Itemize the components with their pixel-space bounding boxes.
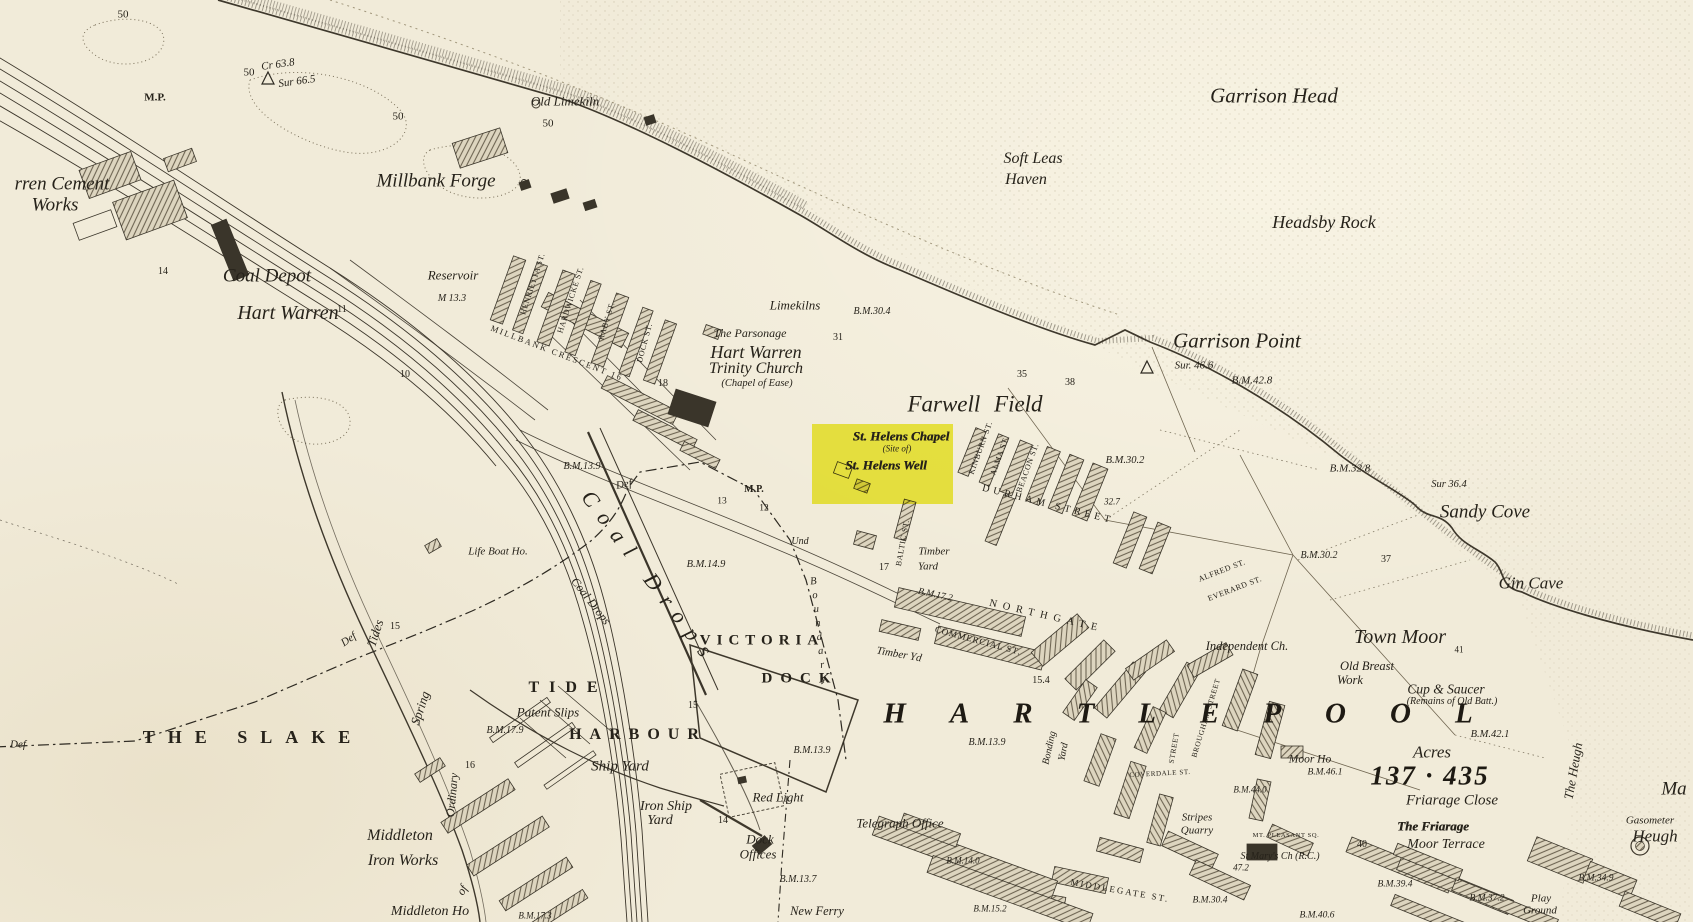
map-label: Heugh: [1632, 828, 1677, 845]
map-label: Sur 36.4: [1431, 480, 1467, 491]
map-label: DURHAM STREET: [981, 484, 1115, 527]
map-label: Town Moor: [1354, 627, 1446, 647]
map-label: Cup & Saucer: [1407, 682, 1484, 696]
map-label: HENRIETTA ST.: [519, 252, 546, 316]
map-label: Tides: [365, 618, 386, 648]
map-label: B.M.13.9: [564, 462, 601, 472]
map-label: Middleton: [367, 828, 433, 844]
map-label: Telegraph Office: [856, 817, 943, 830]
map-label: Works: [32, 196, 79, 215]
map-label: Hart Warren: [237, 303, 338, 323]
map-label: 137 · 435: [1370, 763, 1489, 790]
map-label: 16: [465, 761, 475, 771]
map-label: Old Breast: [1340, 660, 1394, 673]
map-label: Timber Yd: [876, 646, 923, 665]
map-label: B.M.30.2: [1301, 551, 1338, 561]
map-label: St. Helens Chapel: [853, 430, 949, 443]
map-label: NORTHGATE: [988, 599, 1104, 635]
map-label: B.M.42.1: [1471, 730, 1510, 741]
map-label: Sur. 46.6: [1175, 361, 1214, 372]
map-label: Friarage Close: [1406, 794, 1498, 809]
map-label: M 13.3: [438, 294, 466, 304]
map-label: Garrison Point: [1173, 331, 1301, 352]
map-label: Gin Cave: [1499, 575, 1564, 592]
map-label: Spring: [408, 690, 431, 727]
map-label: Ordinary: [444, 772, 460, 817]
map-label: B.M.17.9: [487, 726, 524, 736]
map-label: 18: [658, 379, 668, 389]
map-label: 31: [833, 333, 843, 343]
map-label: Def: [615, 478, 633, 492]
map-label: Yard: [918, 562, 938, 573]
map-label: 41: [1455, 646, 1464, 655]
map-label: The Parsonage: [714, 327, 787, 339]
map-label: 15.4: [1032, 676, 1050, 686]
map-label: Quarry: [1181, 826, 1213, 837]
map-label: Soft Leas: [1003, 151, 1062, 167]
map-label: EVERARD ST.: [1207, 575, 1263, 603]
map-label: 10: [400, 370, 410, 380]
map-label: 47.2: [1233, 864, 1249, 873]
map-label: STREET: [1168, 732, 1181, 764]
map-label: COVERDALE ST.: [1129, 769, 1191, 779]
map-label: The Heugh: [1562, 742, 1585, 801]
map-label: Ma: [1661, 780, 1686, 799]
map-label: 13: [717, 497, 727, 507]
map-label: Limekilns: [770, 299, 821, 312]
map-label: B.M.17.2: [917, 588, 953, 605]
map-label: BALTIC ST.: [895, 519, 911, 567]
map-label: ALFRED ST.: [1197, 558, 1246, 583]
map-label: Headsby Rock: [1272, 213, 1375, 231]
map-label: ALMA ST.: [989, 436, 1010, 477]
map-viewport[interactable]: 50M.P.Cr 63.8Sur 66.5505050Old LimekilnG…: [0, 0, 1693, 922]
map-label: (Site of): [883, 445, 912, 454]
map-label: Offices: [740, 848, 777, 861]
map-label: B.M.30.4: [1192, 896, 1227, 906]
map-label: Haven: [1005, 172, 1047, 188]
map-label: Coal Depot: [223, 267, 311, 286]
map-label: 35: [1017, 370, 1027, 380]
map-labels: 50M.P.Cr 63.8Sur 66.5505050Old LimekilnG…: [0, 0, 1693, 922]
map-label: Garrison Head: [1210, 86, 1338, 107]
map-label: B.M.37.2: [1469, 894, 1504, 904]
map-label: 37: [1381, 555, 1391, 565]
map-label: Sur 66.5: [278, 74, 316, 90]
map-label: B.M.42.8: [1232, 376, 1273, 387]
map-label: Iron Ship: [640, 800, 692, 814]
map-label: Sandy Cove: [1440, 503, 1530, 522]
map-label: rren Cement: [15, 175, 110, 194]
map-label: Dock: [746, 833, 773, 846]
map-label: B.M.30.2: [1106, 456, 1145, 467]
map-label: Def: [339, 631, 358, 649]
map-label: Work: [1337, 674, 1363, 687]
map-label: HARBOUR: [569, 727, 707, 743]
map-label: New Ferry: [790, 905, 844, 918]
map-label: 14: [718, 816, 728, 826]
map-label: B.M.39.4: [1377, 880, 1412, 890]
map-label: TIDE: [528, 680, 607, 696]
map-label: Old Limekiln: [531, 95, 599, 108]
map-label: Hart Warren: [710, 343, 801, 361]
map-label: 50: [543, 119, 554, 130]
map-label: Reservoir: [428, 269, 479, 282]
map-label: B.M.32.8: [1330, 464, 1371, 475]
map-label: RABY ST.: [597, 301, 616, 341]
map-label: DOCK ST.: [636, 323, 654, 364]
map-label: Independent Ch.: [1206, 640, 1289, 653]
map-label: M.P.: [744, 485, 764, 495]
map-label: Cr 63.8: [261, 57, 296, 73]
map-label: MT. PLEASANT SQ.: [1253, 833, 1320, 840]
map-label: Und: [791, 537, 808, 547]
map-label: of: [454, 883, 469, 897]
map-label: B.M.15.2: [973, 905, 1006, 914]
map-label: B.M.13.9: [794, 746, 831, 756]
map-label: THE SLAKE: [143, 728, 364, 746]
map-label: Middleton Ho: [391, 905, 469, 919]
map-label: St Mary's Ch (R.C.): [1240, 852, 1319, 862]
map-label: 50: [244, 68, 255, 79]
map-label: Ship Yard: [591, 760, 649, 775]
map-label: 50: [118, 10, 129, 21]
map-label: 32.7: [1104, 498, 1120, 507]
map-label: 15: [688, 701, 698, 711]
map-label: 40: [1357, 840, 1367, 850]
map-label: Millbank Forge: [376, 172, 495, 191]
map-label: B.M.17.3: [518, 912, 551, 921]
map-label: Gasometer: [1626, 816, 1674, 827]
map-label: Yard: [1057, 742, 1071, 762]
map-label: HARTLEPOOL: [883, 700, 1516, 729]
map-label: Life Boat Ho.: [468, 547, 528, 558]
map-label: Bonding: [1042, 730, 1059, 765]
map-label: M.P.: [144, 93, 166, 104]
map-label: Acres: [1413, 744, 1451, 761]
map-label: Moor Ho: [1289, 754, 1332, 766]
map-label: COMMERCIAL ST.: [934, 625, 1022, 657]
map-label: MIDDLEGATE ST.: [1070, 878, 1170, 904]
map-label: HARDWICKE ST.: [556, 266, 585, 335]
map-label: B.M.14.0: [946, 857, 979, 866]
map-label: 12: [759, 504, 769, 514]
map-label: Patent Slips: [517, 706, 579, 719]
map-label: (Chapel of Ease): [721, 379, 792, 390]
map-label: B.M.14.9: [687, 560, 726, 571]
map-label: Ground: [1523, 906, 1557, 917]
map-label: B.M.44.0: [1233, 786, 1266, 795]
map-label: BEACON ST.: [1015, 442, 1040, 493]
map-label: Farwell Field: [907, 393, 1042, 416]
map-label: B.M.46.1: [1307, 768, 1342, 778]
map-label: Yard: [647, 814, 672, 828]
map-label: Iron Works: [368, 853, 438, 869]
map-label: Moor Terrace: [1407, 838, 1485, 852]
map-label: Stripes: [1182, 813, 1213, 824]
map-label: Coal Drops: [569, 575, 613, 626]
map-label: Timber: [918, 547, 949, 558]
map-label: Play: [1531, 894, 1551, 905]
map-label: B.M.13.9: [969, 738, 1006, 748]
map-label: 11: [337, 305, 347, 315]
map-label: Coal Drops: [577, 487, 722, 670]
map-label: B.M.30.4: [854, 307, 891, 317]
map-label: 50: [393, 112, 404, 123]
map-label: Red Light: [753, 791, 804, 804]
map-label: B.M.34.9: [1578, 874, 1613, 884]
map-label: 15: [390, 622, 400, 632]
map-label: Def: [10, 740, 26, 751]
map-label: B.M.40.6: [1299, 911, 1334, 921]
map-label: 14: [158, 267, 168, 277]
map-label: Trinity Church: [709, 361, 803, 377]
map-label: B.M.13.7: [780, 875, 817, 885]
map-label: 38: [1065, 378, 1075, 388]
map-label: 17: [879, 563, 889, 573]
map-label: The Friarage: [1397, 820, 1469, 833]
map-label: St. Helens Well: [845, 459, 927, 472]
